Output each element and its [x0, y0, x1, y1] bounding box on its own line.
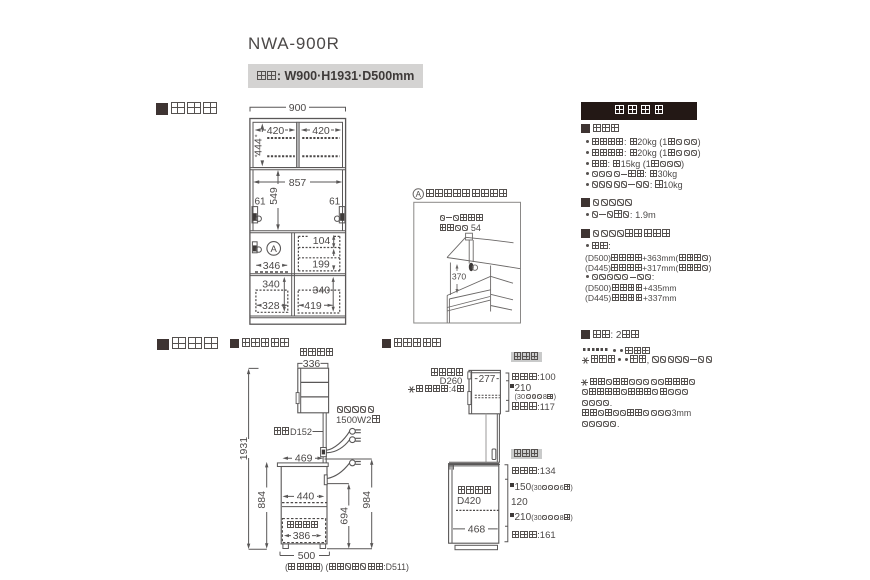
svg-text:419: 419 [304, 300, 322, 312]
svg-text:340: 340 [262, 279, 280, 291]
svg-text:328: 328 [262, 300, 280, 312]
svg-text:500: 500 [298, 550, 316, 562]
svg-text:61: 61 [254, 197, 266, 208]
svg-text:468: 468 [468, 523, 486, 535]
svg-text:*: * [255, 155, 258, 162]
svg-text:61: 61 [329, 197, 341, 208]
svg-text:346: 346 [263, 260, 281, 272]
svg-text:420: 420 [312, 125, 330, 137]
svg-text:549: 549 [268, 187, 280, 205]
svg-text:440: 440 [297, 491, 315, 503]
svg-text:420: 420 [267, 125, 285, 137]
svg-text:984: 984 [361, 491, 373, 509]
svg-text:386: 386 [293, 530, 311, 542]
svg-text:104: 104 [313, 235, 331, 247]
svg-text:199: 199 [312, 259, 330, 271]
svg-text:A: A [271, 244, 278, 255]
svg-text:370: 370 [452, 272, 467, 282]
svg-text:1931: 1931 [238, 437, 250, 461]
svg-text:694: 694 [339, 507, 351, 525]
svg-text:900: 900 [289, 102, 307, 114]
svg-text:A: A [416, 190, 422, 199]
svg-text:*: * [255, 135, 258, 142]
svg-text:884: 884 [256, 491, 268, 509]
svg-text:277: 277 [479, 374, 496, 385]
svg-text:857: 857 [289, 177, 307, 189]
